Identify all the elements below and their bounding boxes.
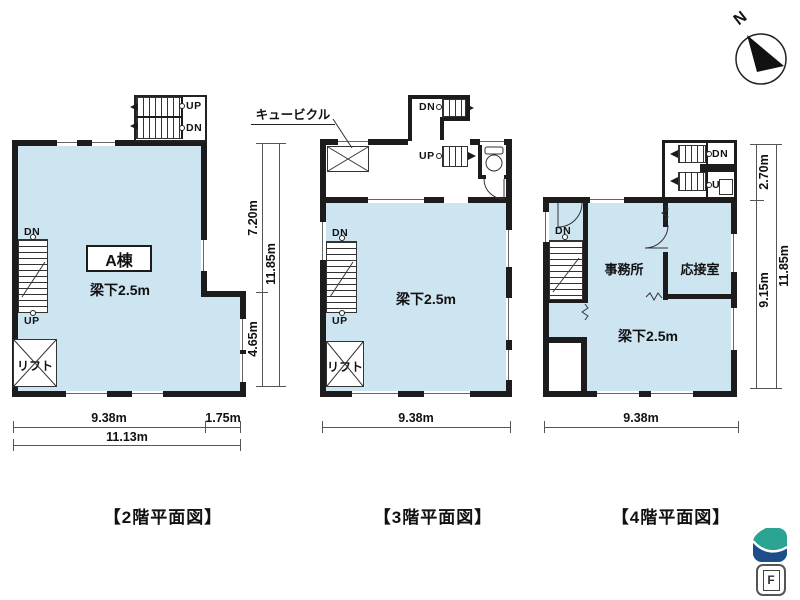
stair-dn-label-3f: DN (419, 102, 435, 113)
room-area-2f-ext (201, 296, 242, 391)
beam-height-label-4f: 梁下2.5m (606, 326, 690, 346)
dim-height-upper-2f: 7.20m (246, 193, 260, 243)
toilet-room-3f (478, 143, 482, 179)
brand-logo-s (753, 528, 787, 562)
void-shaft-4f (549, 343, 581, 391)
stair-up-label-3f: UP (419, 151, 435, 162)
f-logo-document: F (763, 570, 780, 591)
interior-staircase-3f (326, 241, 357, 313)
stair-dn-label-4f: DN (712, 149, 728, 160)
building-name-box: A棟 (86, 245, 152, 272)
cubicle-box (327, 146, 369, 172)
building-name-label: A棟 (105, 247, 133, 271)
office-label: 事務所 (597, 259, 651, 278)
beam-height-label-2f: 梁下2.5m (80, 280, 160, 300)
dim-width-main-2f: 9.38m (79, 411, 139, 425)
exterior-staircase-3f (442, 99, 466, 117)
north-arrow: N (725, 8, 797, 90)
mid-staircase-3f (442, 146, 468, 167)
dim-height-lower-2f: 4.65m (246, 314, 260, 364)
dim-height-total-2f: 11.85m (264, 239, 278, 289)
caption-2f: 【2階平面図】 (78, 503, 248, 528)
dim-width-total-2f: 11.13m (97, 430, 157, 444)
f-logo-label: F (767, 573, 774, 587)
caption-4f: 【4階平面図】 (586, 503, 756, 528)
stair-dn-label-2f: DN (186, 123, 202, 134)
dim-width-main-3f: 9.38m (386, 411, 446, 425)
stair-up-label-2f: UP (186, 101, 202, 112)
lift-label-2f: リフト (13, 357, 57, 374)
dim-height-lower-4f: 9.15m (757, 265, 771, 315)
interior-stair-up-label-3f: UP (332, 316, 348, 327)
lift-label-3f: リフト (326, 358, 364, 375)
dim-height-total-4f: 11.85m (777, 241, 791, 291)
dim-line-2f-width (13, 427, 241, 428)
interior-staircase-4f (549, 240, 583, 300)
brand-logo-f: F (756, 564, 786, 596)
dim-width-main-4f: 9.38m (611, 411, 671, 425)
dim-width-right-2f: 1.75m (198, 411, 248, 425)
interior-staircase-2f (18, 239, 48, 313)
interior-stair-up-label-2f: UP (24, 316, 40, 327)
beam-height-label-3f: 梁下2.5m (384, 289, 468, 309)
cubicle-label: キュービクル (251, 104, 335, 125)
dim-height-upper-4f: 2.70m (757, 147, 771, 197)
caption-3f: 【3階平面図】 (348, 503, 518, 528)
floorplan-sheet: UP DN DN UP A棟 梁下2.5m リフト 9.38m 1.75m 11… (0, 0, 800, 600)
exterior-staircase-4f (678, 145, 706, 163)
reception-label: 応接室 (673, 259, 727, 278)
